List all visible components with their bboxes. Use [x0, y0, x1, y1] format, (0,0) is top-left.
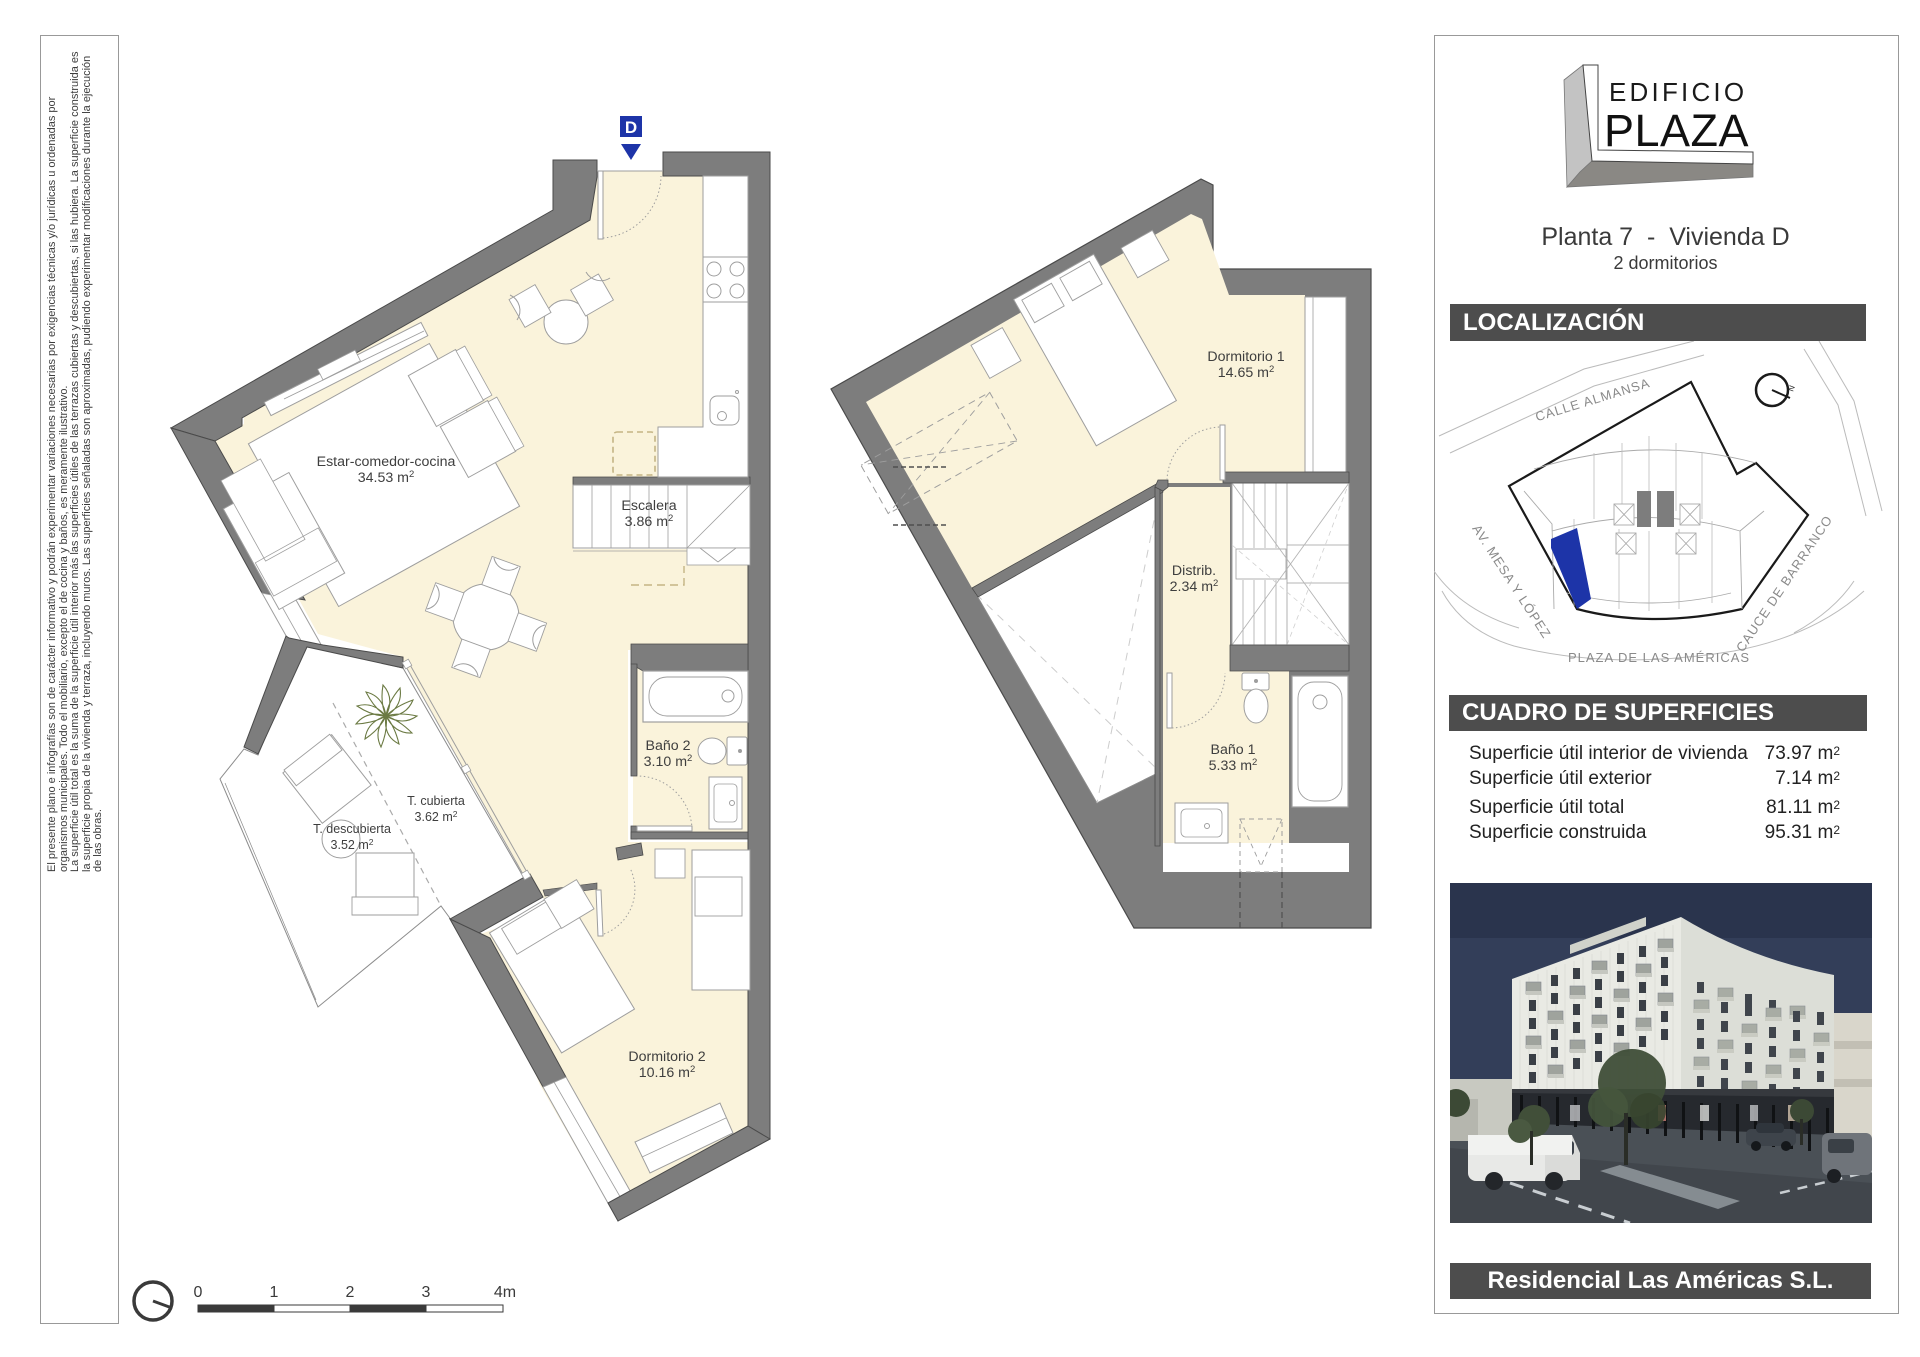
svg-text:14.65 m2: 14.65 m2	[1218, 364, 1275, 381]
svg-text:Escalera: Escalera	[621, 498, 676, 514]
svg-text:2.34 m2: 2.34 m2	[1170, 578, 1219, 595]
svg-text:3: 3	[422, 1284, 431, 1301]
svg-text:3.86 m2: 3.86 m2	[625, 513, 674, 530]
svg-text:5.33 m2: 5.33 m2	[1209, 757, 1258, 774]
svg-text:34.53 m2: 34.53 m2	[358, 469, 415, 486]
svg-text:3.52 m2: 3.52 m2	[331, 837, 374, 852]
svg-text:D: D	[625, 118, 637, 137]
svg-text:T. cubierta: T. cubierta	[407, 794, 465, 808]
svg-text:Estar-comedor-cocina: Estar-comedor-cocina	[317, 454, 456, 470]
svg-text:Dormitorio 1: Dormitorio 1	[1207, 349, 1284, 365]
svg-text:3.10 m2: 3.10 m2	[644, 753, 693, 770]
svg-text:2: 2	[346, 1284, 355, 1301]
svg-text:Dormitorio 2: Dormitorio 2	[628, 1049, 705, 1065]
svg-text:4m: 4m	[494, 1284, 516, 1301]
svg-text:T. descubierta: T. descubierta	[313, 822, 391, 836]
svg-text:Baño 1: Baño 1	[1211, 742, 1256, 758]
svg-text:PLAZA DE LAS AMÉRICAS: PLAZA DE LAS AMÉRICAS	[1568, 650, 1750, 665]
svg-text:10.16 m2: 10.16 m2	[639, 1064, 696, 1081]
svg-text:0: 0	[194, 1284, 203, 1301]
svg-text:Distrib.: Distrib.	[1172, 563, 1216, 579]
svg-text:1: 1	[270, 1284, 279, 1301]
svg-text:3.62 m2: 3.62 m2	[415, 809, 458, 824]
svg-text:Baño 2: Baño 2	[646, 738, 691, 754]
